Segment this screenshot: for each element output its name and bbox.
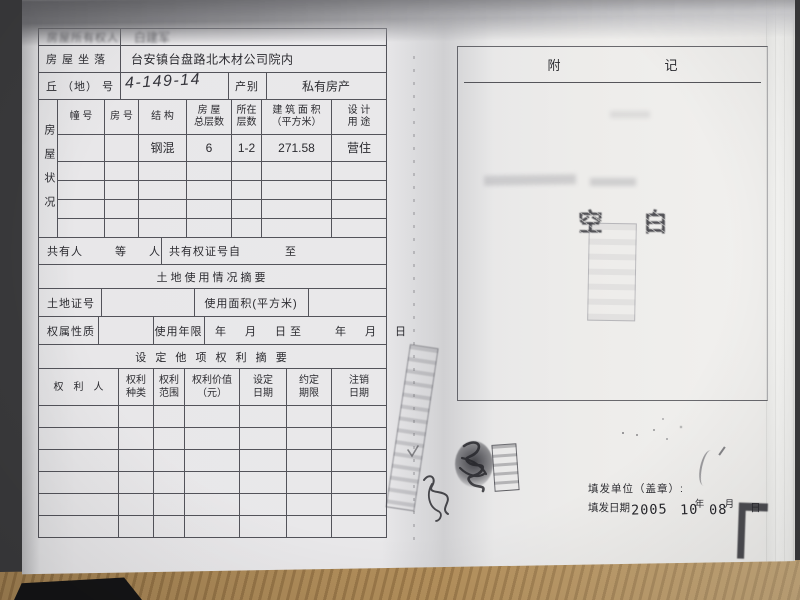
header-cancel-date: 注销 日期 bbox=[331, 369, 386, 405]
cell-building-no bbox=[57, 134, 104, 161]
notes-section-box: 附记 空白 bbox=[457, 46, 768, 401]
land-cert-row: 土地证号 使用面积(平方米) bbox=[39, 288, 386, 316]
header-structure: 结 构 bbox=[138, 100, 186, 134]
empty-cell bbox=[184, 427, 239, 449]
co-owner-to: 至 bbox=[285, 243, 297, 259]
notes-title: 附记 bbox=[510, 55, 795, 74]
ownership-category-value: 私有房产 bbox=[266, 78, 386, 95]
arc-ink-mark bbox=[696, 449, 717, 487]
issue-year-stamp: 2005 bbox=[631, 501, 668, 518]
empty-cell bbox=[184, 493, 239, 515]
cell-structure: 钢混 bbox=[138, 134, 186, 161]
cell-total-floors: 6 bbox=[186, 134, 231, 161]
document-photo: 房屋所有权人 白建军 房 屋 坐 落 台安镇台盘路北木材公司院内 丘 （地） 号… bbox=[0, 0, 800, 600]
empty-cell bbox=[104, 218, 138, 237]
empty-cell bbox=[39, 471, 118, 493]
divider bbox=[120, 46, 121, 72]
empty-cell bbox=[104, 180, 138, 199]
empty-cell bbox=[39, 493, 118, 515]
empty-cell bbox=[153, 515, 184, 537]
empty-cell bbox=[331, 471, 386, 493]
issue-date-line: 填发日期200510年08月日 bbox=[588, 499, 761, 515]
empty-cell bbox=[39, 427, 118, 449]
empty-cell bbox=[231, 161, 261, 180]
co-owner-label: 共有人 bbox=[47, 243, 83, 259]
co-owner-person: 人 bbox=[149, 243, 161, 259]
header-floor: 所在 层数 bbox=[231, 100, 261, 134]
header-designed-use: 设 计 用 途 bbox=[331, 100, 386, 134]
divider bbox=[161, 238, 162, 264]
header-right-kind: 权利 种类 bbox=[118, 369, 153, 405]
page-fore-edge bbox=[766, 0, 795, 576]
tenure-dates-template: 年 月 日至 年 月 日 bbox=[215, 323, 410, 339]
plot-label: 丘 （地） 号 bbox=[46, 78, 114, 94]
empty-cell bbox=[331, 515, 386, 537]
plot-number-handwritten: 4-149-14 bbox=[125, 71, 202, 93]
empty-cell bbox=[286, 493, 331, 515]
co-owner-row: 共有人 等 人 共有权证号自 至 bbox=[39, 237, 386, 264]
empty-cell bbox=[186, 180, 231, 199]
tenure-row: 权属性质 使用年限 年 月 日至 年 月 日 bbox=[39, 316, 386, 344]
empty-cell bbox=[286, 515, 331, 537]
header-right-scope: 权利 范围 bbox=[153, 369, 184, 405]
empty-cell bbox=[331, 199, 386, 218]
empty-cell bbox=[239, 449, 286, 471]
empty-cell bbox=[331, 180, 386, 199]
header-right-value: 权利价值 （元） bbox=[184, 369, 239, 405]
empty-cell bbox=[39, 515, 118, 537]
ink-smear bbox=[610, 111, 650, 118]
empty-cell bbox=[153, 449, 184, 471]
header-right-holder: 权 利 人 bbox=[39, 369, 118, 405]
empty-cell bbox=[231, 199, 261, 218]
empty-cell bbox=[261, 161, 331, 180]
co-owner-etc: 等 bbox=[115, 243, 127, 259]
header-area: 建 筑 面 积 （平方米） bbox=[261, 100, 331, 134]
divider bbox=[98, 317, 99, 344]
certificate-book-spread: 房屋所有权人 白建军 房 屋 坐 落 台安镇台盘路北木材公司院内 丘 （地） 号… bbox=[22, 0, 795, 576]
empty-cell bbox=[184, 449, 239, 471]
empty-cell bbox=[184, 471, 239, 493]
unit-year: 年 bbox=[695, 496, 705, 510]
empty-cell bbox=[239, 405, 286, 427]
empty-cell bbox=[331, 161, 386, 180]
location-label: 房 屋 坐 落 bbox=[46, 51, 106, 67]
header-room-no: 房 号 bbox=[104, 100, 138, 134]
empty-cell bbox=[138, 161, 186, 180]
empty-cell bbox=[261, 218, 331, 237]
corner-bracket-stamp bbox=[737, 503, 768, 560]
empty-cell bbox=[239, 515, 286, 537]
empty-cell bbox=[331, 493, 386, 515]
slash-ink-mark bbox=[718, 446, 725, 455]
empty-cell bbox=[118, 471, 153, 493]
ink-smear bbox=[484, 174, 576, 186]
empty-cell bbox=[231, 218, 261, 237]
header-building-no: 幢 号 bbox=[57, 100, 104, 134]
empty-cell bbox=[57, 161, 104, 180]
tenure-label: 权属性质 bbox=[47, 323, 95, 339]
house-status-label: 房屋状况 bbox=[39, 100, 57, 237]
co-owner-cert-label: 共有权证号自 bbox=[169, 243, 241, 259]
empty-cell bbox=[261, 199, 331, 218]
empty-cell bbox=[118, 493, 153, 515]
empty-cell bbox=[104, 199, 138, 218]
land-cert-label: 土地证号 bbox=[47, 295, 95, 311]
page-curl bbox=[22, 0, 795, 47]
empty-cell bbox=[104, 161, 138, 180]
empty-cell bbox=[153, 471, 184, 493]
empty-cell bbox=[331, 427, 386, 449]
empty-cell bbox=[261, 180, 331, 199]
empty-cell bbox=[286, 405, 331, 427]
empty-cell bbox=[286, 471, 331, 493]
empty-cell bbox=[57, 218, 104, 237]
handwritten-scribbles bbox=[402, 380, 532, 530]
header-set-date: 设定 日期 bbox=[239, 369, 286, 405]
land-area-label: 使用面积(平方米) bbox=[194, 295, 308, 311]
header-term: 约定 期限 bbox=[286, 369, 331, 405]
land-use-section-title: 土地使用情况摘要 bbox=[39, 264, 386, 288]
ink-specks bbox=[622, 432, 624, 434]
issuer-line: 填发单位（盖章）: bbox=[588, 481, 684, 496]
empty-cell bbox=[331, 449, 386, 471]
empty-cell bbox=[118, 405, 153, 427]
empty-cell bbox=[39, 449, 118, 471]
empty-cell bbox=[57, 199, 104, 218]
empty-cell bbox=[231, 180, 261, 199]
divider bbox=[120, 73, 121, 99]
empty-cell bbox=[331, 405, 386, 427]
lien-section-title: 设 定 他 项 权 利 摘 要 bbox=[39, 344, 386, 368]
empty-cell bbox=[138, 199, 186, 218]
empty-cell bbox=[57, 180, 104, 199]
empty-cell bbox=[153, 405, 184, 427]
divider bbox=[308, 289, 309, 316]
divider bbox=[204, 317, 205, 344]
header-total-floors: 房 屋 总层数 bbox=[186, 100, 231, 134]
cell-area: 271.58 bbox=[261, 134, 331, 161]
cell-floor: 1-2 bbox=[231, 134, 261, 161]
empty-cell bbox=[138, 218, 186, 237]
cell-room-no bbox=[104, 134, 138, 161]
empty-cell bbox=[184, 405, 239, 427]
issuer-label: 填发单位（盖章）: bbox=[588, 483, 684, 495]
cell-designed-use: 营住 bbox=[331, 134, 386, 161]
issue-date-label: 填发日期 bbox=[588, 502, 630, 514]
empty-cell bbox=[286, 427, 331, 449]
blank-stamp: 空白 bbox=[578, 203, 708, 239]
empty-cell bbox=[239, 471, 286, 493]
empty-cell bbox=[153, 427, 184, 449]
empty-cell bbox=[331, 218, 386, 237]
location-row: 房 屋 坐 落 台安镇台盘路北木材公司院内 bbox=[39, 45, 386, 72]
empty-cell bbox=[138, 180, 186, 199]
empty-cell bbox=[184, 515, 239, 537]
ink-smear bbox=[590, 178, 636, 186]
empty-cell bbox=[186, 218, 231, 237]
lien-grid: 权 利 人 权利 种类 权利 范围 权利价值 （元） 设定 日期 约定 期限 注… bbox=[39, 368, 386, 537]
empty-cell bbox=[118, 515, 153, 537]
divider bbox=[101, 289, 102, 316]
tenure-years-label: 使用年限 bbox=[153, 323, 204, 339]
empty-cell bbox=[39, 405, 118, 427]
empty-cell bbox=[286, 449, 331, 471]
empty-cell bbox=[239, 427, 286, 449]
location-value: 台安镇台盘路北木材公司院内 bbox=[131, 51, 294, 68]
plot-number-row: 丘 （地） 号 4-149-14 产别 私有房产 bbox=[39, 72, 386, 99]
unit-month: 月 bbox=[725, 496, 735, 510]
empty-cell bbox=[118, 427, 153, 449]
house-status-grid: 房屋状况 幢 号 房 号 结 构 房 屋 总层数 所在 层数 建 筑 面 积 （… bbox=[39, 99, 386, 237]
empty-cell bbox=[239, 493, 286, 515]
empty-cell bbox=[186, 161, 231, 180]
empty-cell bbox=[118, 449, 153, 471]
empty-cell bbox=[186, 199, 231, 218]
empty-cell bbox=[153, 493, 184, 515]
ownership-category-label: 产别 bbox=[228, 78, 266, 94]
property-registration-table: 房屋所有权人 白建军 房 屋 坐 落 台安镇台盘路北木材公司院内 丘 （地） 号… bbox=[38, 28, 387, 538]
notes-title-rule bbox=[464, 82, 761, 83]
